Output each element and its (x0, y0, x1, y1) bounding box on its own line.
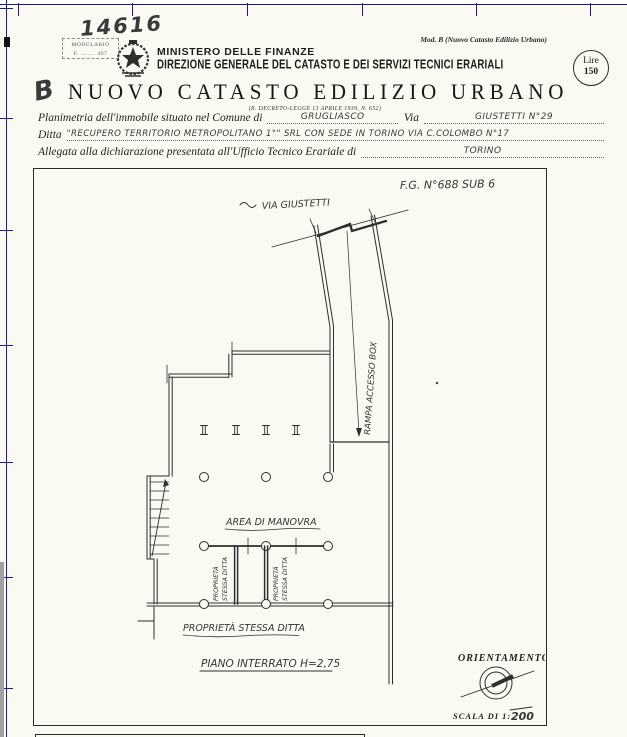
form-row-ditta: Ditta "RECUPERO TERRITORIO METROPOLITANO… (38, 129, 604, 141)
mod-b-note: Mod. B (Nuovo Catasto Edilizio Urbano) (395, 35, 547, 44)
left-registration-rule (6, 0, 7, 737)
registration-mark (4, 37, 10, 47)
manoeuvre-area-label: AREA DI MANOVRA (225, 517, 317, 528)
ditta-label: Ditta (38, 129, 67, 141)
rule-tick (0, 8, 13, 9)
rule-tick (590, 3, 591, 16)
modulario-line1: MODULARIO (63, 41, 118, 50)
document-title: NUOVO CATASTO EDILIZIO URBANO (68, 79, 568, 105)
stair-arrow (163, 479, 169, 487)
rule-tick (0, 230, 13, 231)
property-label-left-1: PROPRIETÀ (211, 566, 220, 601)
column-circle (200, 600, 209, 609)
property-label-right-2: STESSA DITTA (282, 557, 289, 601)
state-eagle-emblem-icon (112, 38, 154, 80)
rule-tick (18, 3, 19, 16)
via-label: Via (398, 112, 424, 124)
column-circle (200, 473, 209, 482)
comune-value: GRUGLIASCO (267, 112, 397, 124)
compass-north-arrow (492, 676, 513, 686)
steel-columns (201, 426, 300, 435)
modulario-line2: F. ........ 497 (63, 50, 118, 59)
street-label: VIA GIUSTETTI (262, 197, 331, 212)
sheet-reference: F.G. N°688 SUB 6 (400, 177, 495, 192)
property-label-bottom: PROPRIETÀ STESSA DITTA (183, 622, 305, 634)
ramp-label: RAMPA ACCESSO BOX (363, 341, 379, 435)
form-row-ufficio: Allegata alla dichiarazione presentata a… (38, 146, 604, 158)
form-row-comune: Planimetria dell'immobile situato nel Co… (38, 112, 604, 124)
rule-tick (0, 345, 13, 346)
box-partition-walls (235, 546, 268, 604)
ministry-name: MINISTERO DELLE FINANZE (157, 46, 315, 58)
column-circle (324, 600, 333, 609)
fee-amount: 150 (574, 67, 608, 78)
modulario-box: MODULARIO F. ........ 497 (62, 38, 119, 59)
scale-value: 200 (511, 710, 534, 723)
scan-edge-strip (0, 562, 4, 737)
column-circle (324, 473, 333, 482)
ufficio-value: TORINO (361, 146, 604, 158)
ufficio-label: Allegata alla dichiarazione presentata a… (38, 146, 361, 158)
fee-stamp-circle: Lire 150 (573, 50, 609, 86)
ramp-direction-arrow (356, 428, 362, 437)
floor-plan-drawing: F.G. N°688 SUB 6 VIA GIUSTETTI RAMPA ACC… (34, 169, 545, 724)
plan-sheet-frame: F.G. N°688 SUB 6 VIA GIUSTETTI RAMPA ACC… (33, 168, 547, 726)
rule-tick (362, 3, 363, 16)
top-registration-rule (0, 4, 627, 5)
column-circle (200, 542, 209, 551)
scale-label: SCALA DI 1: (453, 711, 511, 721)
column-circle (324, 542, 333, 551)
rule-tick (476, 3, 477, 16)
rule-tick (0, 118, 13, 119)
column-circle (262, 473, 271, 482)
property-label-right-1: PROPRIETÀ (271, 566, 280, 601)
rule-tick (247, 3, 248, 16)
fee-currency: Lire (574, 56, 608, 67)
column-circle (262, 542, 271, 551)
rule-tick (0, 462, 13, 463)
orientation-label: ORIENTAMENTO (458, 653, 545, 664)
via-value: GIUSTETTI N°29 (424, 112, 604, 124)
ditta-value: "RECUPERO TERRITORIO METROPOLITANO 1°" S… (67, 129, 604, 141)
floor-label: PIANO INTERRATO H=2,75 (201, 658, 340, 670)
column-circle (262, 600, 271, 609)
comune-label: Planimetria dell'immobile situato nel Co… (38, 112, 267, 124)
street-label-squiggle (240, 203, 256, 208)
scan-speck (436, 382, 438, 384)
direction-name: DIREZIONE GENERALE DEL CATASTO E DEI SER… (157, 58, 503, 72)
property-label-left-2: STESSA DITTA (222, 557, 229, 601)
